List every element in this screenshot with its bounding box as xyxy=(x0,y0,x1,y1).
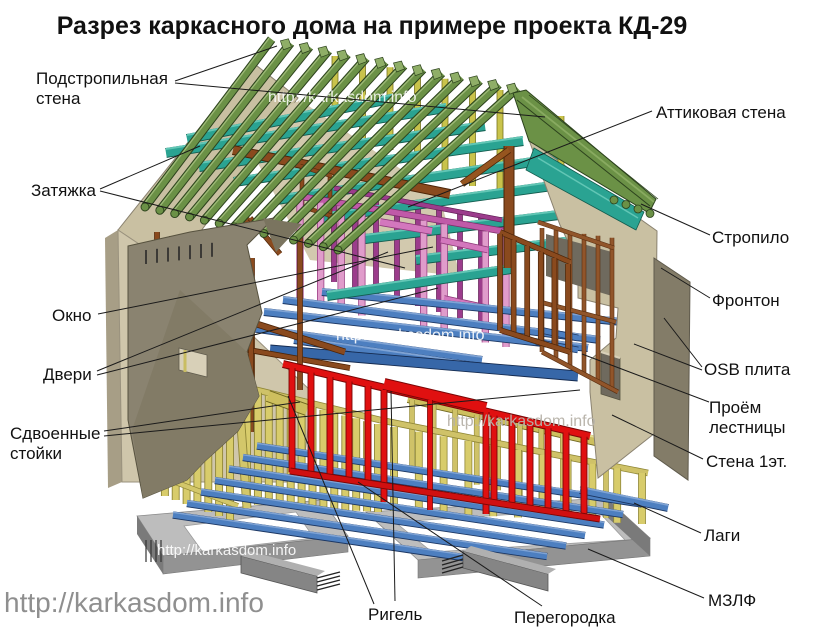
svg-text:стена: стена xyxy=(36,89,81,108)
svg-text:МЗЛФ: МЗЛФ xyxy=(708,591,756,610)
svg-text:Ригель: Ригель xyxy=(368,605,422,624)
svg-text:Проём: Проём xyxy=(709,398,761,417)
svg-text:OSB плита: OSB плита xyxy=(704,360,791,379)
svg-text:http://karkasdom.info: http://karkasdom.info xyxy=(447,413,596,430)
svg-text:Перегородка: Перегородка xyxy=(514,608,616,627)
svg-text:Подстропильная: Подстропильная xyxy=(36,69,168,88)
svg-text:Затяжка: Затяжка xyxy=(31,181,97,200)
svg-text:Двери: Двери xyxy=(43,365,92,384)
svg-text:Аттиковая стена: Аттиковая стена xyxy=(656,103,786,122)
svg-text:Фронтон: Фронтон xyxy=(712,291,780,310)
svg-text:Стропило: Стропило xyxy=(712,228,789,247)
svg-text:Разрез каркасного дома на прим: Разрез каркасного дома на примере проект… xyxy=(57,12,688,40)
svg-text:Сдвоенные: Сдвоенные xyxy=(10,424,100,443)
svg-text:стойки: стойки xyxy=(10,444,62,463)
svg-text:лестницы: лестницы xyxy=(709,418,786,437)
svg-text:Лаги: Лаги xyxy=(704,526,740,545)
svg-text:Окно: Окно xyxy=(52,306,92,325)
svg-text:http://karkasdom.info: http://karkasdom.info xyxy=(157,542,296,559)
svg-text:Стена 1эт.: Стена 1эт. xyxy=(706,452,787,471)
svg-text:http://karkasdom.info: http://karkasdom.info xyxy=(4,587,264,618)
svg-text:http://karkasdom.info: http://karkasdom.info xyxy=(336,327,485,344)
